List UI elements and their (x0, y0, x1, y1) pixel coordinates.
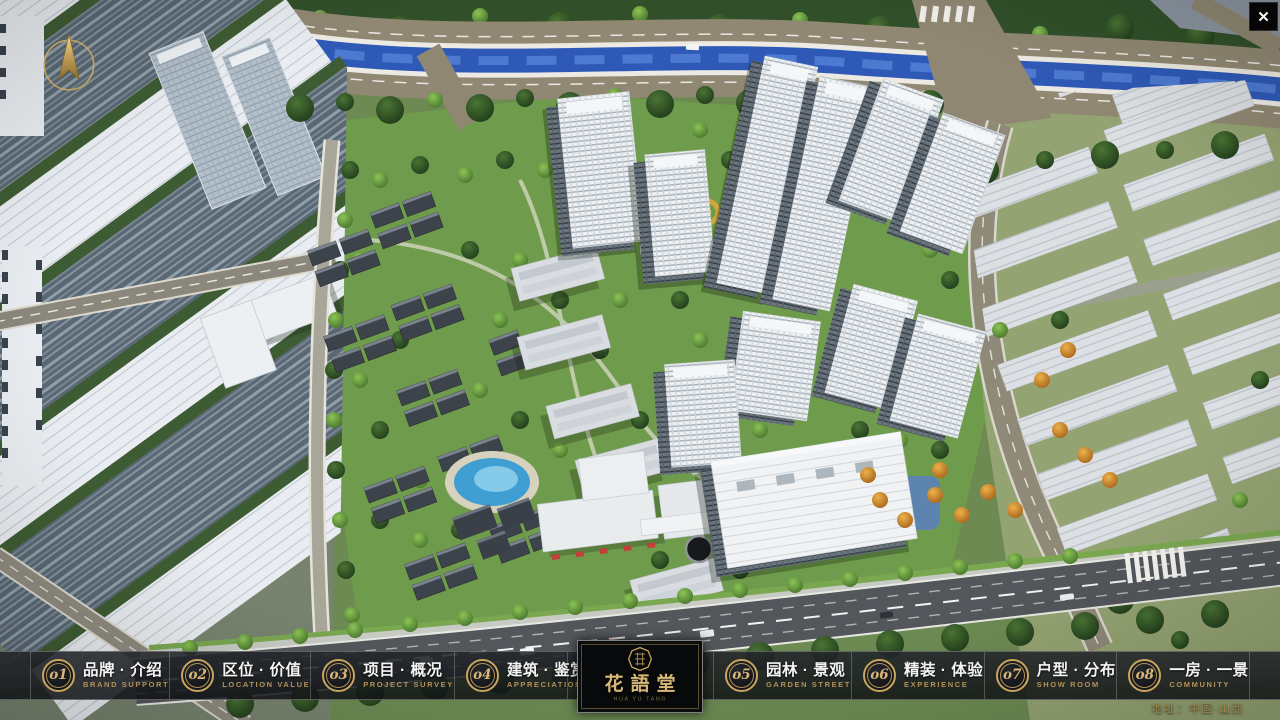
nav-labels: 园林 · 景观 GARDEN STREET (766, 662, 851, 689)
nav-number: o7 (1003, 669, 1021, 683)
logo-name: 花語堂 (597, 673, 682, 696)
close-icon: ✕ (1257, 8, 1270, 26)
nav-label-zh: 建筑 · 鉴赏 (507, 662, 586, 680)
nav-labels: 精装 · 体验 EXPERIENCE (904, 662, 983, 689)
nav-number: o6 (870, 669, 888, 683)
nav-label-zh: 品牌 · 介绍 (83, 662, 169, 680)
nav-label-en: APPRECIATION (507, 681, 586, 690)
nav-number-badge: o5 (725, 659, 758, 692)
nav-group-left: o1 品牌 · 介绍 BRAND SUPPORT o2 区位 · 价值 LOCA… (30, 652, 568, 699)
nav-number-badge: o1 (42, 659, 75, 692)
nav-number: o1 (49, 669, 67, 683)
nav-label-zh: 区位 · 价值 (222, 662, 310, 680)
nav-label-en: BRAND SUPPORT (83, 681, 169, 690)
nav-number-badge: o4 (466, 659, 499, 692)
close-button[interactable]: ✕ (1249, 2, 1278, 31)
nav-number-badge: o6 (863, 659, 896, 692)
nav-label-zh: 园林 · 景观 (766, 662, 851, 680)
nav-item-interior[interactable]: o6 精装 · 体验 EXPERIENCE (851, 652, 984, 699)
logo-subtitle: HUA YU TANG (613, 697, 667, 702)
nav-labels: 区位 · 价值 LOCATION VALUE (222, 662, 310, 689)
project-address: 地址：中国·山西 (1151, 700, 1244, 716)
nav-label-en: PROJECT SURVEY (363, 681, 454, 690)
nav-number-badge: o8 (1128, 659, 1161, 692)
sales-presentation-window: ✕ o1 品牌 · 介绍 BRAND SUPPORT o2 区位 · 价值 LO… (0, 0, 1280, 720)
nav-number-badge: o2 (181, 659, 214, 692)
nav-number: o2 (189, 669, 207, 683)
nav-label-en: LOCATION VALUE (222, 681, 310, 690)
compass[interactable] (36, 28, 102, 98)
nav-item-landscape[interactable]: o5 园林 · 景观 GARDEN STREET (713, 652, 851, 699)
nav-number-badge: o7 (996, 659, 1029, 692)
nav-item-location[interactable]: o2 区位 · 价值 LOCATION VALUE (169, 652, 310, 699)
nav-item-floorplan[interactable]: o7 户型 · 分布 SHOW ROOM (984, 652, 1117, 699)
nav-label-en: EXPERIENCE (904, 681, 983, 690)
nav-label-zh: 项目 · 概况 (363, 662, 454, 680)
vignette (0, 0, 1280, 720)
nav-label-zh: 一房 · 一景 (1169, 662, 1248, 680)
nav-number: o5 (732, 669, 750, 683)
logo-panel[interactable]: 花語堂 HUA YU TANG (577, 640, 703, 713)
nav-item-project[interactable]: o3 项目 · 概况 PROJECT SURVEY (310, 652, 454, 699)
nav-number: o3 (329, 669, 347, 683)
nav-item-room-views[interactable]: o8 一房 · 一景 COMMUNITY (1116, 652, 1250, 699)
nav-item-brand[interactable]: o1 品牌 · 介绍 BRAND SUPPORT (30, 652, 169, 699)
scene-render[interactable] (0, 0, 1280, 720)
nav-number: o8 (1136, 669, 1154, 683)
nav-labels: 品牌 · 介绍 BRAND SUPPORT (83, 662, 169, 689)
logo-seal-icon (627, 646, 653, 672)
nav-label-zh: 户型 · 分布 (1037, 662, 1116, 680)
nav-label-zh: 精装 · 体验 (904, 662, 983, 680)
nav-number-badge: o3 (322, 659, 355, 692)
nav-label-en: COMMUNITY (1169, 681, 1248, 690)
nav-group-right: o5 园林 · 景观 GARDEN STREET o6 精装 · 体验 EXPE… (713, 652, 1250, 699)
nav-labels: 项目 · 概况 PROJECT SURVEY (363, 662, 454, 689)
nav-labels: 建筑 · 鉴赏 APPRECIATION (507, 662, 586, 689)
nav-label-en: SHOW ROOM (1037, 681, 1116, 690)
nav-item-architecture[interactable]: o4 建筑 · 鉴赏 APPRECIATION (454, 652, 586, 699)
nav-label-en: GARDEN STREET (766, 681, 851, 690)
nav-labels: 户型 · 分布 SHOW ROOM (1037, 662, 1116, 689)
nav-number: o4 (473, 669, 491, 683)
nav-labels: 一房 · 一景 COMMUNITY (1169, 662, 1248, 689)
